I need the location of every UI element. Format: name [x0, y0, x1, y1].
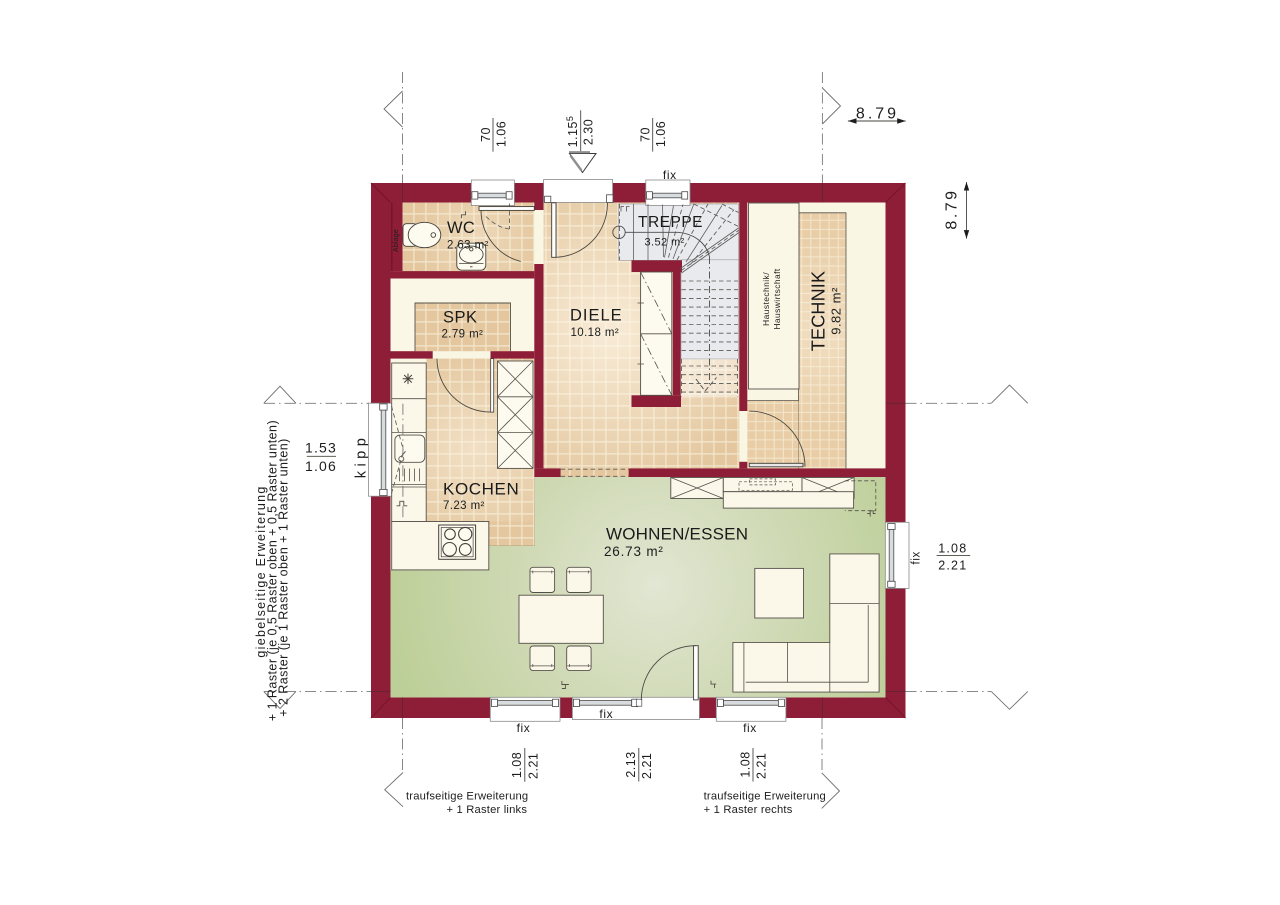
svg-text:3.52 m²: 3.52 m² — [645, 237, 685, 249]
svg-text:WOHNEN/ESSEN: WOHNEN/ESSEN — [606, 525, 748, 544]
svg-text:2.21: 2.21 — [754, 753, 768, 779]
svg-text:traufseitige Erweiterung: traufseitige Erweiterung — [406, 791, 528, 803]
svg-text:2.63 m²: 2.63 m² — [447, 240, 489, 252]
svg-text:2.79 m²: 2.79 m² — [442, 329, 484, 341]
svg-text:DIELE: DIELE — [570, 307, 623, 325]
svg-text:1.06: 1.06 — [305, 458, 337, 474]
svg-text:KOCHEN: KOCHEN — [443, 480, 519, 499]
svg-text:2.21: 2.21 — [640, 753, 654, 779]
svg-text:+ 1 Raster links: + 1 Raster links — [447, 804, 528, 816]
svg-text:fix: fix — [911, 551, 923, 564]
svg-text:Haustechnik/: Haustechnik/ — [761, 272, 771, 326]
svg-text:1.06: 1.06 — [654, 121, 668, 147]
svg-text:70: 70 — [639, 127, 653, 142]
svg-text:1.08: 1.08 — [510, 752, 524, 778]
svg-text:TREPPE: TREPPE — [638, 214, 703, 231]
svg-text:1.08: 1.08 — [938, 541, 967, 555]
svg-text:2.21: 2.21 — [526, 753, 540, 779]
svg-text:fix: fix — [743, 721, 757, 735]
svg-text:2.21: 2.21 — [938, 559, 967, 573]
svg-text:TECHNIK: TECHNIK — [809, 271, 829, 351]
svg-text:kipp: kipp — [354, 434, 370, 479]
svg-text:9.82 m²: 9.82 m² — [829, 287, 844, 335]
svg-text:7.23 m²: 7.23 m² — [443, 500, 485, 512]
svg-text:+ 2 Raster (je 1 Raster oben +: + 2 Raster (je 1 Raster oben + 1 Raster … — [276, 438, 290, 716]
svg-text:WC: WC — [447, 219, 475, 237]
svg-text:2.13: 2.13 — [624, 751, 638, 777]
svg-text:10.18 m²: 10.18 m² — [571, 327, 620, 339]
svg-text:8.79: 8.79 — [944, 188, 961, 229]
svg-text:1.53: 1.53 — [305, 440, 337, 456]
svg-text:1.08: 1.08 — [738, 751, 752, 777]
svg-text:8.79: 8.79 — [856, 106, 899, 123]
svg-text:2.30: 2.30 — [582, 119, 596, 145]
svg-text:SPK: SPK — [443, 309, 478, 327]
svg-text:Hauswirtschaft: Hauswirtschaft — [772, 268, 782, 330]
svg-text:1.06: 1.06 — [495, 121, 509, 147]
svg-text:+ 1 Raster rechts: + 1 Raster rechts — [704, 804, 793, 816]
svg-text:70: 70 — [479, 127, 493, 142]
svg-text:26.73 m²: 26.73 m² — [604, 544, 664, 559]
svg-text:fix: fix — [599, 707, 613, 721]
svg-text:fix: fix — [517, 721, 531, 735]
svg-text:Ablage: Ablage — [393, 229, 400, 252]
svg-text:traufseitige Erweiterung: traufseitige Erweiterung — [704, 791, 826, 803]
